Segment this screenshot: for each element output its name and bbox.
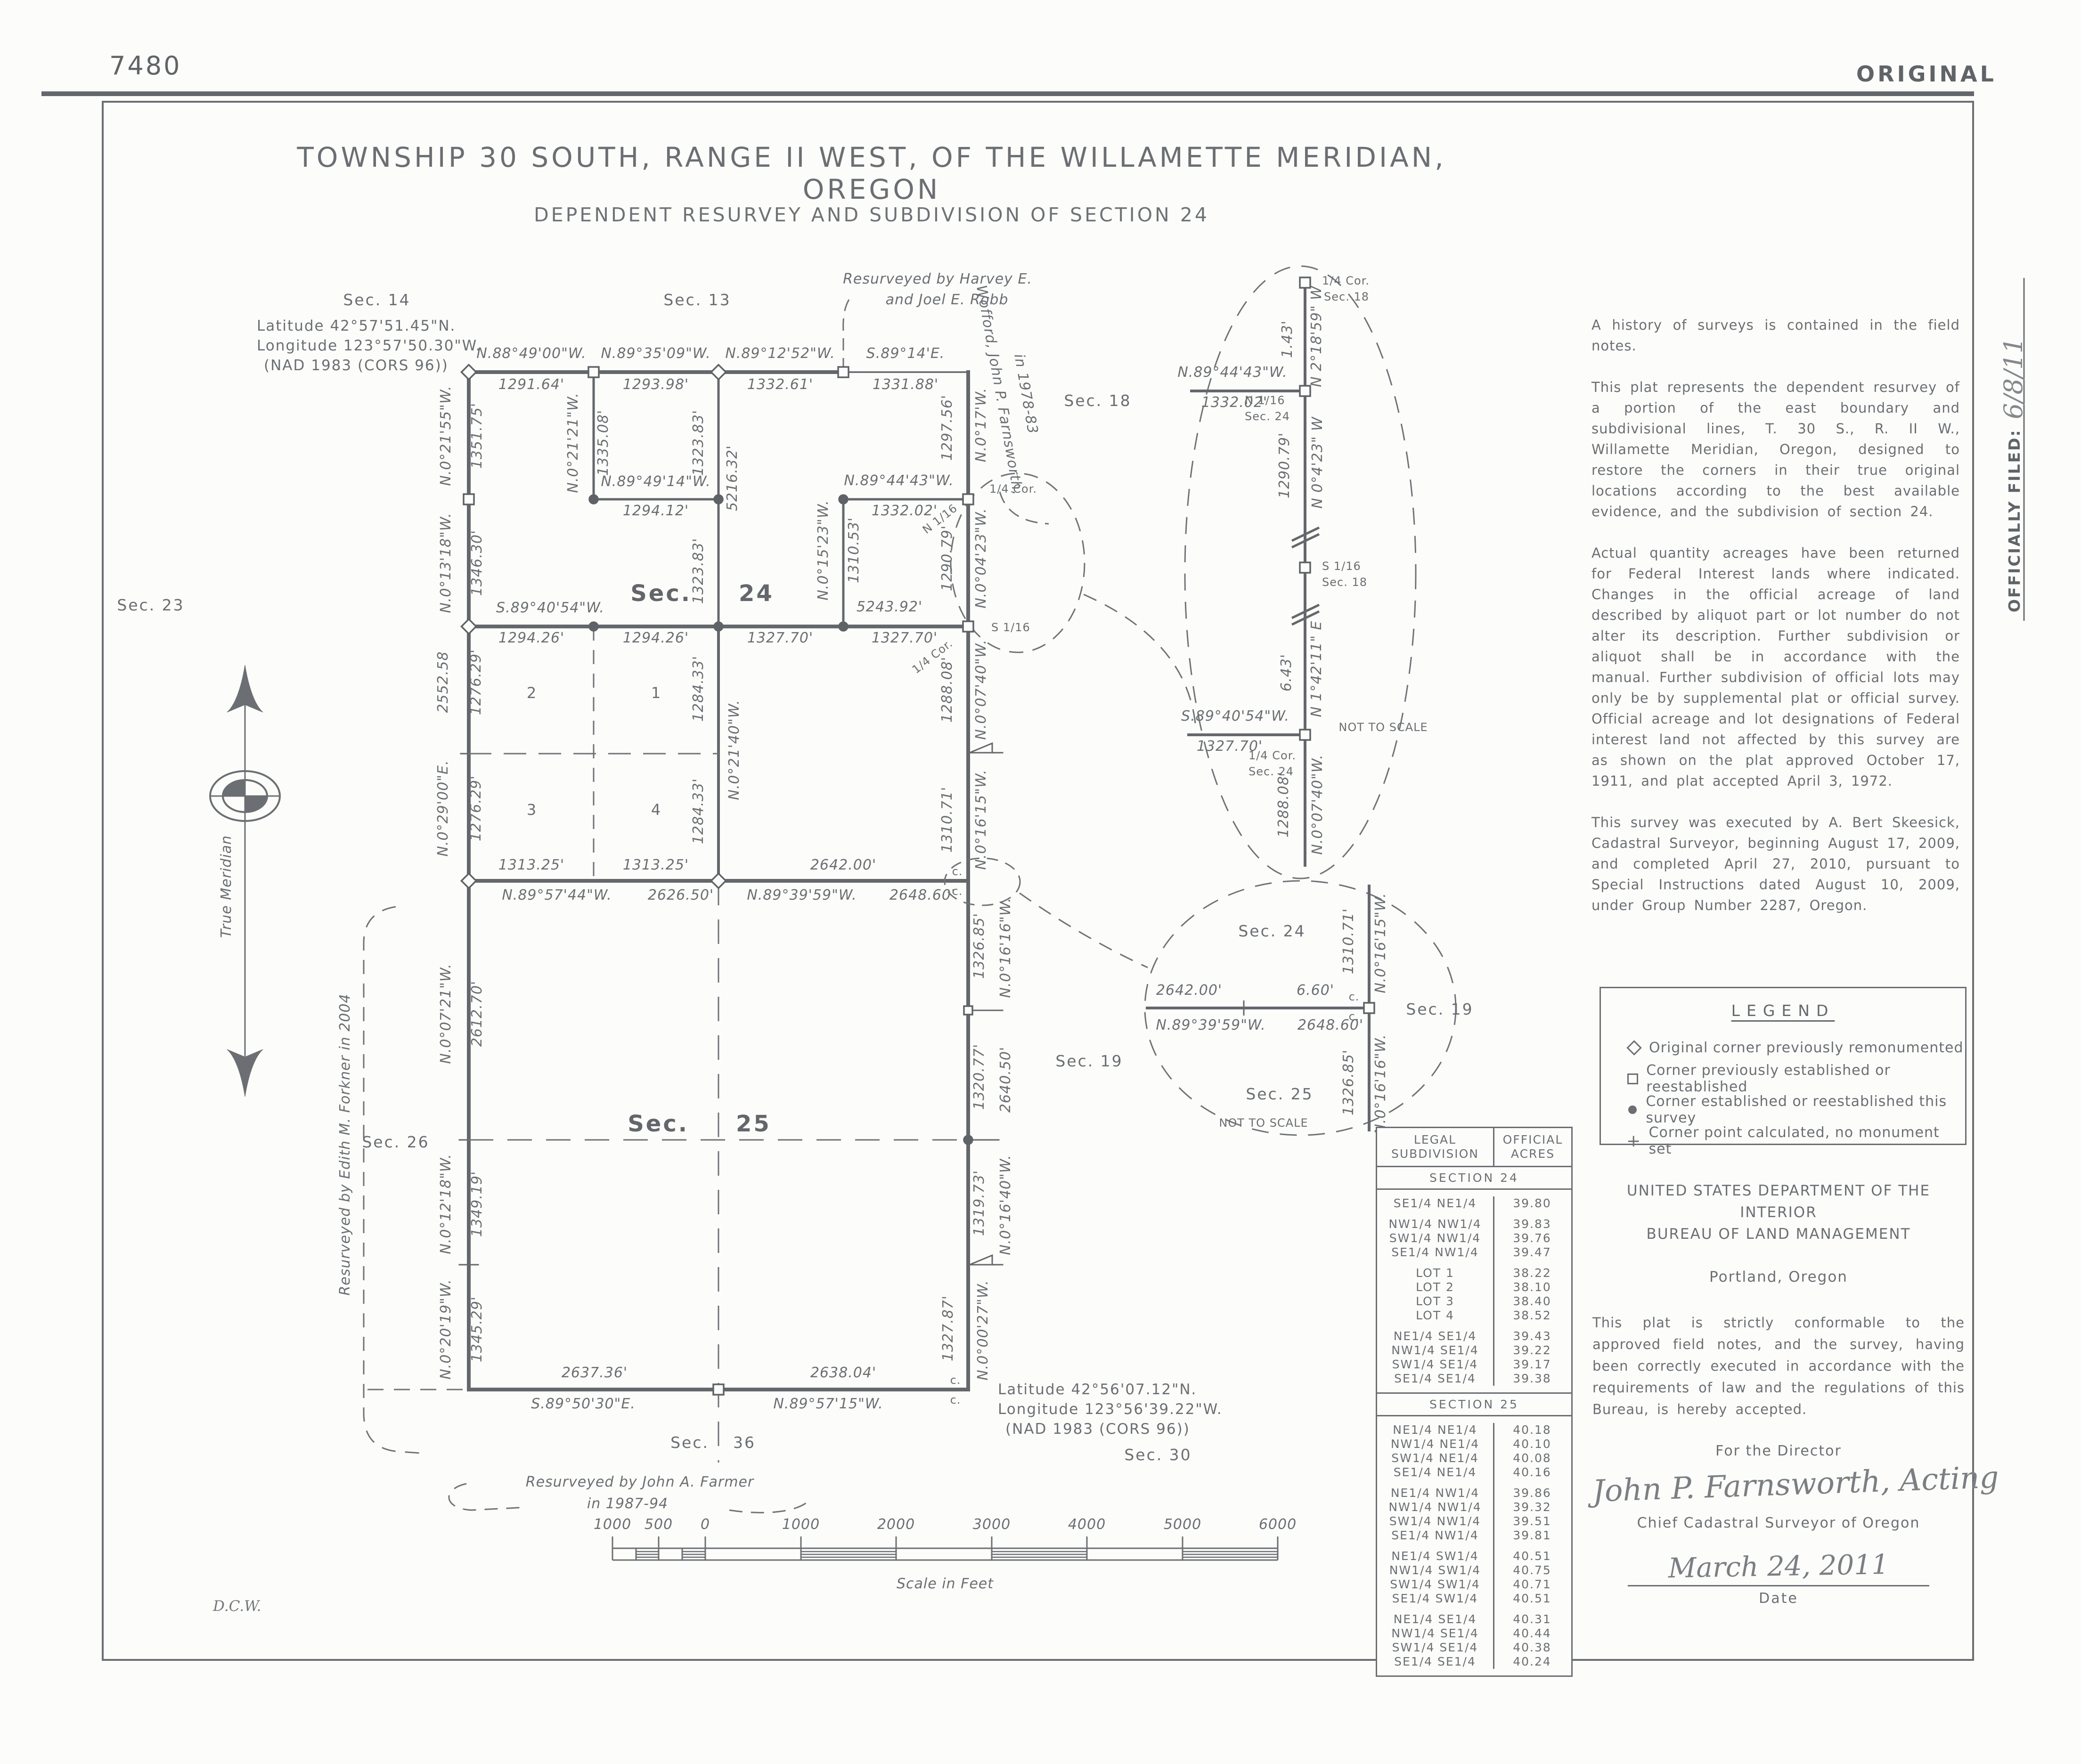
plat-label: 1276.29'	[468, 775, 484, 841]
plat-label: N.0°29'00"E.	[435, 760, 451, 857]
cell-official-acres: 40.18	[1493, 1423, 1571, 1437]
survey-notes: A history of surveys is contained in the…	[1591, 315, 1960, 936]
plat-label: NOT TO SCALE	[1338, 721, 1428, 734]
cell-legal-subdivision: NW1/4 SE1/4	[1377, 1626, 1493, 1641]
cell-legal-subdivision: NW1/4 NE1/4	[1377, 1437, 1493, 1451]
plat-label: 1327.87'	[940, 1295, 956, 1361]
plat-label: S.89°50'30"E.	[531, 1396, 636, 1412]
plat-label: 2637.36'	[562, 1365, 628, 1381]
plat-label: 1276.29'	[468, 649, 484, 715]
cell-legal-subdivision: NE1/4 SW1/4	[1377, 1549, 1493, 1563]
cell-official-acres: 39.51	[1493, 1514, 1571, 1528]
plat-label: Latitude 42°56'07.12"N.	[998, 1381, 1197, 1398]
table-row: SE1/4 NE1/440.16	[1377, 1465, 1571, 1479]
cell-official-acres: 39.22	[1493, 1343, 1571, 1358]
table-row-group: NE1/4 SW1/440.51NW1/4 SW1/440.75SW1/4 SW…	[1377, 1549, 1571, 1606]
table-row: SW1/4 SW1/440.71	[1377, 1577, 1571, 1592]
plat-label: N.0°07'40"W.	[973, 639, 989, 740]
plat-label: 5216.32'	[724, 445, 741, 511]
cell-legal-subdivision: SW1/4 NW1/4	[1377, 1231, 1493, 1245]
table-row: SW1/4 NW1/439.76	[1377, 1231, 1571, 1245]
plat-label: 1.43'	[1279, 320, 1296, 358]
plat-label: N.0°15'23"W.	[815, 500, 832, 600]
plat-label: 1293.98'	[623, 376, 689, 393]
plat-label: N.0°12'18"W.	[438, 1154, 454, 1254]
plat-label: Longitude 123°57'50.30"W.	[257, 337, 481, 354]
dot-symbol-icon	[1619, 1106, 1646, 1114]
plat-label: N.0°16'40"W.	[997, 1154, 1014, 1255]
plat-label: N.0°07'21"W.	[438, 963, 454, 1064]
table-section-title: SECTION 25	[1377, 1392, 1571, 1416]
legend-item-text: Corner established or reestablished this…	[1646, 1093, 1965, 1126]
scale-number: 0	[701, 1516, 710, 1533]
table-row-group: SE1/4 NE1/439.80	[1377, 1196, 1571, 1211]
table-row: LOT 338.40	[1377, 1294, 1571, 1309]
scale-numbers: 10005000100020003000400050006000	[594, 1516, 1297, 1533]
plat-label: 1320.77'	[971, 1044, 987, 1110]
cell-official-acres: 38.52	[1493, 1309, 1571, 1323]
plat-label: 1313.25'	[498, 857, 564, 873]
plat-label: N 2°18'59" W	[1308, 285, 1325, 387]
plat-label: 1284.33'	[690, 778, 707, 844]
note-paragraph: This plat represents the dependent resur…	[1591, 377, 1960, 522]
plat-label: Sec. 24	[1238, 922, 1306, 940]
note-paragraph: This survey was executed by A. Bert Skee…	[1591, 812, 1960, 916]
plat-label: Longitude 123°56'39.22"W.	[998, 1401, 1223, 1418]
legend-title: LEGEND	[1601, 1001, 1965, 1020]
plat-label: 1323.83'	[690, 538, 707, 604]
plat-label: 1313.25'	[623, 857, 689, 873]
plat-label: 1326.85'	[1340, 1049, 1357, 1115]
plat-label: Resurveyed by John A. Farmer	[526, 1474, 754, 1490]
cell-legal-subdivision: SW1/4 SW1/4	[1377, 1577, 1493, 1592]
cell-official-acres: 39.43	[1493, 1329, 1571, 1343]
plat-label: 1327.70'	[747, 630, 813, 646]
plat-label: 5243.92'	[857, 599, 922, 615]
plat-label: Sec. 19	[1055, 1052, 1123, 1070]
plat-label: 1327.70'	[872, 630, 938, 646]
scale-number: 4000	[1068, 1516, 1106, 1533]
plat-label: 1332.61'	[747, 376, 813, 393]
column-divider	[1493, 1196, 1494, 1386]
cell-official-acres: 40.10	[1493, 1437, 1571, 1451]
plat-label: N.0°00'27"W.	[975, 1280, 991, 1380]
plat-label: 6.60'	[1297, 982, 1334, 999]
legend-item: Corner established or reestablished this…	[1619, 1094, 1965, 1125]
plat-label: S.89°40'54"W.	[1181, 708, 1289, 724]
table-row: NE1/4 NW1/439.86	[1377, 1486, 1571, 1500]
note-paragraph: A history of surveys is contained in the…	[1591, 315, 1960, 356]
plat-label: Sec. 18	[1322, 576, 1367, 589]
plat-label: N.0°04'23"W.	[973, 508, 989, 608]
cell-legal-subdivision: NW1/4 SW1/4	[1377, 1563, 1493, 1577]
cell-official-acres: 38.22	[1493, 1266, 1571, 1280]
cell-official-acres: 39.47	[1493, 1245, 1571, 1260]
cell-legal-subdivision: NW1/4 SE1/4	[1377, 1343, 1493, 1358]
cell-legal-subdivision: SE1/4 SE1/4	[1377, 1372, 1493, 1386]
signature: John P. Farnsworth, Acting	[1592, 1461, 1965, 1509]
plat-label: N.0°16'16"W.	[1372, 1034, 1389, 1134]
plat-label: N.89°57'15"W.	[773, 1396, 883, 1412]
plat-label: 36	[733, 1433, 756, 1452]
cell-official-acres: 40.16	[1493, 1465, 1571, 1479]
table-row-group: LOT 138.22LOT 238.10LOT 338.40LOT 438.52	[1377, 1266, 1571, 1323]
plat-label: 1290.79'	[939, 525, 955, 591]
legend-item: Original corner previously remonumented	[1619, 1032, 1965, 1063]
table-row: SW1/4 SE1/440.38	[1377, 1641, 1571, 1655]
plus-symbol-icon: +	[1619, 1131, 1649, 1151]
plat-label: Sec. 14	[343, 291, 410, 309]
cell-official-acres: 39.83	[1493, 1217, 1571, 1231]
plat-label: 1349.19'	[469, 1171, 485, 1237]
plat-label: N.0°21'55"W.	[438, 385, 454, 486]
plat-label: N 0°4'23" W	[1309, 416, 1326, 509]
cell-legal-subdivision: NE1/4 NE1/4	[1377, 1423, 1493, 1437]
plat-label: c.	[1349, 990, 1360, 1003]
table-row-group: NW1/4 NW1/439.83SW1/4 NW1/439.76SE1/4 NW…	[1377, 1217, 1571, 1260]
plat-label: 2	[527, 684, 536, 702]
plat-label: N.0°21'21"W.	[565, 392, 581, 493]
survey-plat-sheet: 7480 ORIGINAL TOWNSHIP 30 SOUTH, RANGE I…	[0, 0, 2081, 1764]
cell-official-acres: 40.24	[1493, 1655, 1571, 1669]
plat-labels: Sec. 14Sec. 13Sec. 18Sec. 23Sec. 26Sec.3…	[117, 271, 1473, 1512]
table-row: NW1/4 NW1/439.32	[1377, 1500, 1571, 1514]
table-row: SW1/4 NW1/439.51	[1377, 1514, 1571, 1528]
col-official-acres: OFFICIALACRES	[1494, 1128, 1571, 1166]
cell-official-acres: 39.86	[1493, 1486, 1571, 1500]
plat-label: 1346.30'	[469, 530, 485, 596]
plat-label: 2638.04'	[810, 1365, 876, 1381]
acreage-table-header: LEGALSUBDIVISION OFFICIALACRES	[1377, 1128, 1571, 1167]
column-divider	[1493, 1423, 1494, 1669]
table-row: LOT 438.52	[1377, 1309, 1571, 1323]
cell-legal-subdivision: SE1/4 SE1/4	[1377, 1655, 1493, 1669]
plat-label: N.89°57'44"W.	[502, 887, 612, 903]
plat-label: 24	[739, 580, 774, 607]
acreage-table: LEGALSUBDIVISION OFFICIALACRES SECTION 2…	[1376, 1127, 1573, 1677]
office-city: Portland, Oregon	[1592, 1268, 1965, 1285]
cell-legal-subdivision: NE1/4 SE1/4	[1377, 1329, 1493, 1343]
scale-number: 1000	[594, 1516, 631, 1533]
plat-label: N.89°12'52"W.	[725, 345, 835, 362]
plat-label: N.89°44'43"W.	[844, 472, 954, 489]
plat-label: Resurveyed by Harvey E.	[843, 271, 1032, 287]
legend-item-text: Corner point calculated, no monument set	[1649, 1124, 1965, 1157]
cell-official-acres: 40.51	[1493, 1592, 1571, 1606]
cell-legal-subdivision: SE1/4 NE1/4	[1377, 1465, 1493, 1479]
plat-label: Sec.	[628, 1111, 689, 1137]
plat-label: 3	[527, 801, 536, 819]
plat-label: N.89°35'09"W.	[601, 345, 710, 362]
plat-label: 1/4 Cor.	[989, 482, 1037, 496]
plat-label: N.0°07'40"W.	[1309, 754, 1326, 854]
plat-label: 2626.50'	[648, 887, 714, 903]
cell-official-acres: 39.32	[1493, 1500, 1571, 1514]
cell-official-acres: 39.80	[1493, 1196, 1571, 1211]
table-row: NW1/4 NE1/440.10	[1377, 1437, 1571, 1451]
table-row: SW1/4 SE1/439.17	[1377, 1358, 1571, 1372]
plat-label: S.89°40'54"W.	[496, 600, 604, 616]
plat-label: 1335.08'	[595, 410, 612, 476]
legend-item: Corner previously established or reestab…	[1619, 1063, 1965, 1094]
plat-label: c.	[952, 865, 963, 878]
plat-label: 1291.64'	[498, 376, 564, 393]
cell-official-acres: 38.40	[1493, 1294, 1571, 1309]
plat-label: 2552.58	[435, 651, 451, 713]
plat-label: N.0°16'15"W.	[973, 769, 989, 870]
plat-label: 1	[651, 684, 661, 702]
table-row: LOT 138.22	[1377, 1266, 1571, 1280]
plat-label: 1326.85'	[971, 913, 987, 979]
table-row: SE1/4 SW1/440.51	[1377, 1592, 1571, 1606]
plat-label: Sec. 13	[663, 291, 731, 309]
cell-official-acres: 39.38	[1493, 1372, 1571, 1386]
plat-label: 6.43'	[1278, 654, 1295, 691]
scale-fill	[636, 1552, 1278, 1557]
plat-label: 1323.83'	[690, 410, 707, 476]
plat-label: 1345.29'	[469, 1296, 485, 1362]
cell-legal-subdivision: SW1/4 SE1/4	[1377, 1358, 1493, 1372]
scale-number: 500	[645, 1516, 673, 1533]
note-paragraph: Actual quantity acreages have been retur…	[1591, 543, 1960, 791]
plat-label: N.89°39'59"W.	[747, 887, 857, 903]
plat-label: N.0°17'W.	[973, 388, 989, 462]
cell-official-acres: 40.71	[1493, 1577, 1571, 1592]
plat-label: 1290.79'	[1276, 432, 1293, 498]
date-handwritten: March 24, 2011	[1627, 1547, 1929, 1585]
plat-label: 1294.26'	[623, 630, 689, 646]
acceptance-text: This plat is strictly conformable to the…	[1592, 1312, 1965, 1420]
scale-number: 3000	[973, 1516, 1011, 1533]
plat-label: 4	[651, 801, 661, 819]
date-label: Date	[1592, 1590, 1965, 1607]
plat-label: Sec.	[630, 580, 692, 607]
plat-label: N.0°13'18"W.	[438, 512, 454, 613]
plat-label: N.0°16'15"W.	[1372, 893, 1389, 993]
cell-official-acres: 40.31	[1493, 1612, 1571, 1626]
table-row: NW1/4 SW1/440.75	[1377, 1563, 1571, 1577]
legend-item: +Corner point calculated, no monument se…	[1619, 1125, 1965, 1156]
plat-label: 2648.60'	[890, 887, 955, 903]
plat-label: 1284.33'	[690, 656, 707, 722]
cell-official-acres: 38.10	[1493, 1280, 1571, 1294]
plat-label: Sec. 19	[1406, 1000, 1473, 1018]
plat-label: 1288.08'	[939, 657, 955, 723]
plat-label: 2640.50'	[997, 1047, 1014, 1113]
plat-label: in 1978-83	[1011, 353, 1041, 436]
plat-label: N.0°21'40"W.	[726, 699, 743, 800]
plat-label: 2612.70'	[469, 981, 485, 1047]
scale-bar	[612, 1536, 1278, 1560]
table-row-group: NE1/4 NW1/439.86NW1/4 NW1/439.32SW1/4 NW…	[1377, 1486, 1571, 1543]
plat-label: (NAD 1983 (CORS 96))	[264, 357, 449, 374]
cell-legal-subdivision: SE1/4 NE1/4	[1377, 1196, 1493, 1211]
filed-label: OFFICIALLY FILED:	[2005, 429, 2024, 612]
plat-label: 1288.08'	[1275, 772, 1292, 837]
acreage-table-body: SECTION 24SE1/4 NE1/439.80NW1/4 NW1/439.…	[1377, 1167, 1571, 1669]
cell-official-acres: 40.38	[1493, 1641, 1571, 1655]
plat-label: Sec.	[670, 1433, 709, 1452]
col-legal-subdivision: LEGALSUBDIVISION	[1377, 1128, 1494, 1166]
table-row: SW1/4 NE1/440.08	[1377, 1451, 1571, 1465]
cell-official-acres: 40.44	[1493, 1626, 1571, 1641]
plat-label: (NAD 1983 (CORS 96))	[1005, 1421, 1190, 1438]
dept-line-2: BUREAU OF LAND MANAGEMENT	[1592, 1223, 1965, 1245]
table-row: NE1/4 NE1/440.18	[1377, 1423, 1571, 1437]
for-the-director: For the Director	[1592, 1443, 1965, 1459]
plat-label: in 1987-94	[587, 1496, 668, 1512]
plat-label: N.88°49'00"W.	[476, 345, 586, 362]
plat-label: 1294.12'	[623, 503, 689, 519]
plat-label: N.89°39'59"W.	[1156, 1017, 1265, 1033]
scale-caption: Scale in Feet	[897, 1576, 994, 1592]
plat-label: 1319.73'	[971, 1170, 987, 1236]
cell-official-acres: 39.81	[1493, 1528, 1571, 1543]
plat-label: c.	[950, 1374, 961, 1387]
cell-legal-subdivision: SE1/4 NW1/4	[1377, 1245, 1493, 1260]
plat-label: 1310.71'	[939, 787, 955, 853]
cell-official-acres: 40.08	[1493, 1451, 1571, 1465]
cell-official-acres: 39.17	[1493, 1358, 1571, 1372]
acceptance-block: UNITED STATES DEPARTMENT OF THE INTERIOR…	[1592, 1180, 1965, 1607]
cell-legal-subdivision: LOT 2	[1377, 1280, 1493, 1294]
diamond-symbol-icon	[1619, 1042, 1649, 1053]
table-row: SE1/4 SE1/439.38	[1377, 1372, 1571, 1386]
plat-label: S.89°14'E.	[866, 345, 945, 362]
plat-label: 25	[736, 1111, 771, 1137]
plat-label: c.	[1349, 1010, 1360, 1023]
legend: LEGEND Original corner previously remonu…	[1600, 987, 1967, 1145]
plat-label: Sec. 30	[1124, 1446, 1191, 1464]
table-row-group: NE1/4 SE1/439.43NW1/4 SE1/439.22SW1/4 SE…	[1377, 1329, 1571, 1386]
table-row: NW1/4 NW1/439.83	[1377, 1217, 1571, 1231]
cell-legal-subdivision: NW1/4 NW1/4	[1377, 1500, 1493, 1514]
scale-number: 2000	[877, 1516, 915, 1533]
cell-legal-subdivision: SW1/4 NE1/4	[1377, 1451, 1493, 1465]
plat-label: Sec. 25	[1246, 1085, 1313, 1103]
scale-number: 1000	[782, 1516, 820, 1533]
plat-label: S 1/16	[991, 621, 1030, 634]
table-row: SE1/4 NW1/439.47	[1377, 1245, 1571, 1260]
legend-items: Original corner previously remonumentedC…	[1619, 1032, 1965, 1156]
dept-line-1: UNITED STATES DEPARTMENT OF THE INTERIOR	[1592, 1180, 1965, 1223]
filed-date-handwritten: 6/8/11	[1999, 337, 2028, 419]
plat-label: 2642.00'	[1156, 982, 1222, 999]
plat-label: 1297.56'	[939, 395, 955, 461]
plat-label: 1310.71'	[1340, 908, 1357, 974]
cell-legal-subdivision: NW1/4 NW1/4	[1377, 1217, 1493, 1231]
cell-official-acres: 40.51	[1493, 1549, 1571, 1563]
plat-label: 1/4 Cor.	[1322, 274, 1370, 287]
table-row: SE1/4 NE1/439.80	[1377, 1196, 1571, 1211]
table-section-body: NE1/4 NE1/440.18NW1/4 NE1/440.10SW1/4 NE…	[1377, 1423, 1571, 1669]
table-row: SE1/4 NW1/439.81	[1377, 1528, 1571, 1543]
legend-item-text: Original corner previously remonumented	[1649, 1040, 1964, 1056]
plat-label: Resurveyed by Edith M. Forkner in 2004	[337, 993, 353, 1295]
plat-label: Sec. 26	[362, 1133, 429, 1151]
cell-legal-subdivision: LOT 1	[1377, 1266, 1493, 1280]
table-row: NW1/4 SE1/440.44	[1377, 1626, 1571, 1641]
plat-label: 1310.53'	[846, 517, 862, 583]
cell-legal-subdivision: NE1/4 SE1/4	[1377, 1612, 1493, 1626]
table-row: LOT 238.10	[1377, 1280, 1571, 1294]
plat-label: N.89°44'43"W.	[1177, 364, 1287, 381]
table-row-group: NE1/4 SE1/440.31NW1/4 SE1/440.44SW1/4 SE…	[1377, 1612, 1571, 1669]
plat-label: 1332.02'	[872, 503, 938, 519]
plat-label: S 1/16	[1322, 560, 1361, 573]
plat-label: 1331.88'	[873, 376, 938, 393]
table-row-group: NE1/4 NE1/440.18NW1/4 NE1/440.10SW1/4 NE…	[1377, 1423, 1571, 1479]
cell-legal-subdivision: SW1/4 SE1/4	[1377, 1641, 1493, 1655]
plat-label: N 1°42'11" E	[1308, 621, 1325, 717]
cell-legal-subdivision: NE1/4 NW1/4	[1377, 1486, 1493, 1500]
plat-label: Sec. 24	[1245, 410, 1290, 423]
cell-legal-subdivision: SW1/4 NW1/4	[1377, 1514, 1493, 1528]
plat-label: 1351.75'	[469, 403, 485, 469]
plat-label: 2642.00'	[810, 857, 876, 873]
signer-title: Chief Cadastral Surveyor of Oregon	[1592, 1515, 1965, 1531]
table-row: NW1/4 SE1/439.22	[1377, 1343, 1571, 1358]
cell-legal-subdivision: SE1/4 SW1/4	[1377, 1592, 1493, 1606]
square-symbol-icon	[1619, 1073, 1646, 1084]
plat-label: c.	[950, 1393, 961, 1406]
plat-label: Sec. 23	[117, 596, 184, 614]
scale-number: 6000	[1259, 1516, 1297, 1533]
plat-label: Latitude 42°57'51.45"N.	[257, 317, 456, 334]
plat-label: N.0°16'16"W.	[997, 897, 1014, 998]
drafter-initials: D.C.W.	[213, 1598, 261, 1615]
cell-legal-subdivision: LOT 3	[1377, 1294, 1493, 1309]
plat-label: NOT TO SCALE	[1219, 1116, 1308, 1130]
plat-label: True Meridian	[218, 835, 235, 938]
plat-label: 1/4 Cor.	[1249, 749, 1296, 762]
plat-label: N.89°49'14"W.	[601, 473, 710, 490]
table-section-body: SE1/4 NE1/439.80NW1/4 NW1/439.83SW1/4 NW…	[1377, 1196, 1571, 1386]
cell-official-acres: 39.76	[1493, 1231, 1571, 1245]
plat-label: Sec. 18	[1324, 290, 1369, 303]
cell-official-acres: 40.75	[1493, 1563, 1571, 1577]
scale-number: 5000	[1164, 1516, 1201, 1533]
cell-legal-subdivision: LOT 4	[1377, 1309, 1493, 1323]
plat-label: N 1/16	[1245, 394, 1285, 407]
cell-legal-subdivision: SE1/4 NW1/4	[1377, 1528, 1493, 1543]
plat-label: 1294.26'	[498, 630, 564, 646]
table-row: SE1/4 SE1/440.24	[1377, 1655, 1571, 1669]
plat-label: N.0°20'19"W.	[438, 1279, 454, 1379]
table-row: NE1/4 SE1/440.31	[1377, 1612, 1571, 1626]
table-row: NE1/4 SW1/440.51	[1377, 1549, 1571, 1563]
legend-item-text: Corner previously established or reestab…	[1646, 1062, 1965, 1095]
plat-label: Sec. 18	[1064, 391, 1131, 410]
table-section-title: SECTION 24	[1377, 1167, 1571, 1190]
table-row: NE1/4 SE1/439.43	[1377, 1329, 1571, 1343]
